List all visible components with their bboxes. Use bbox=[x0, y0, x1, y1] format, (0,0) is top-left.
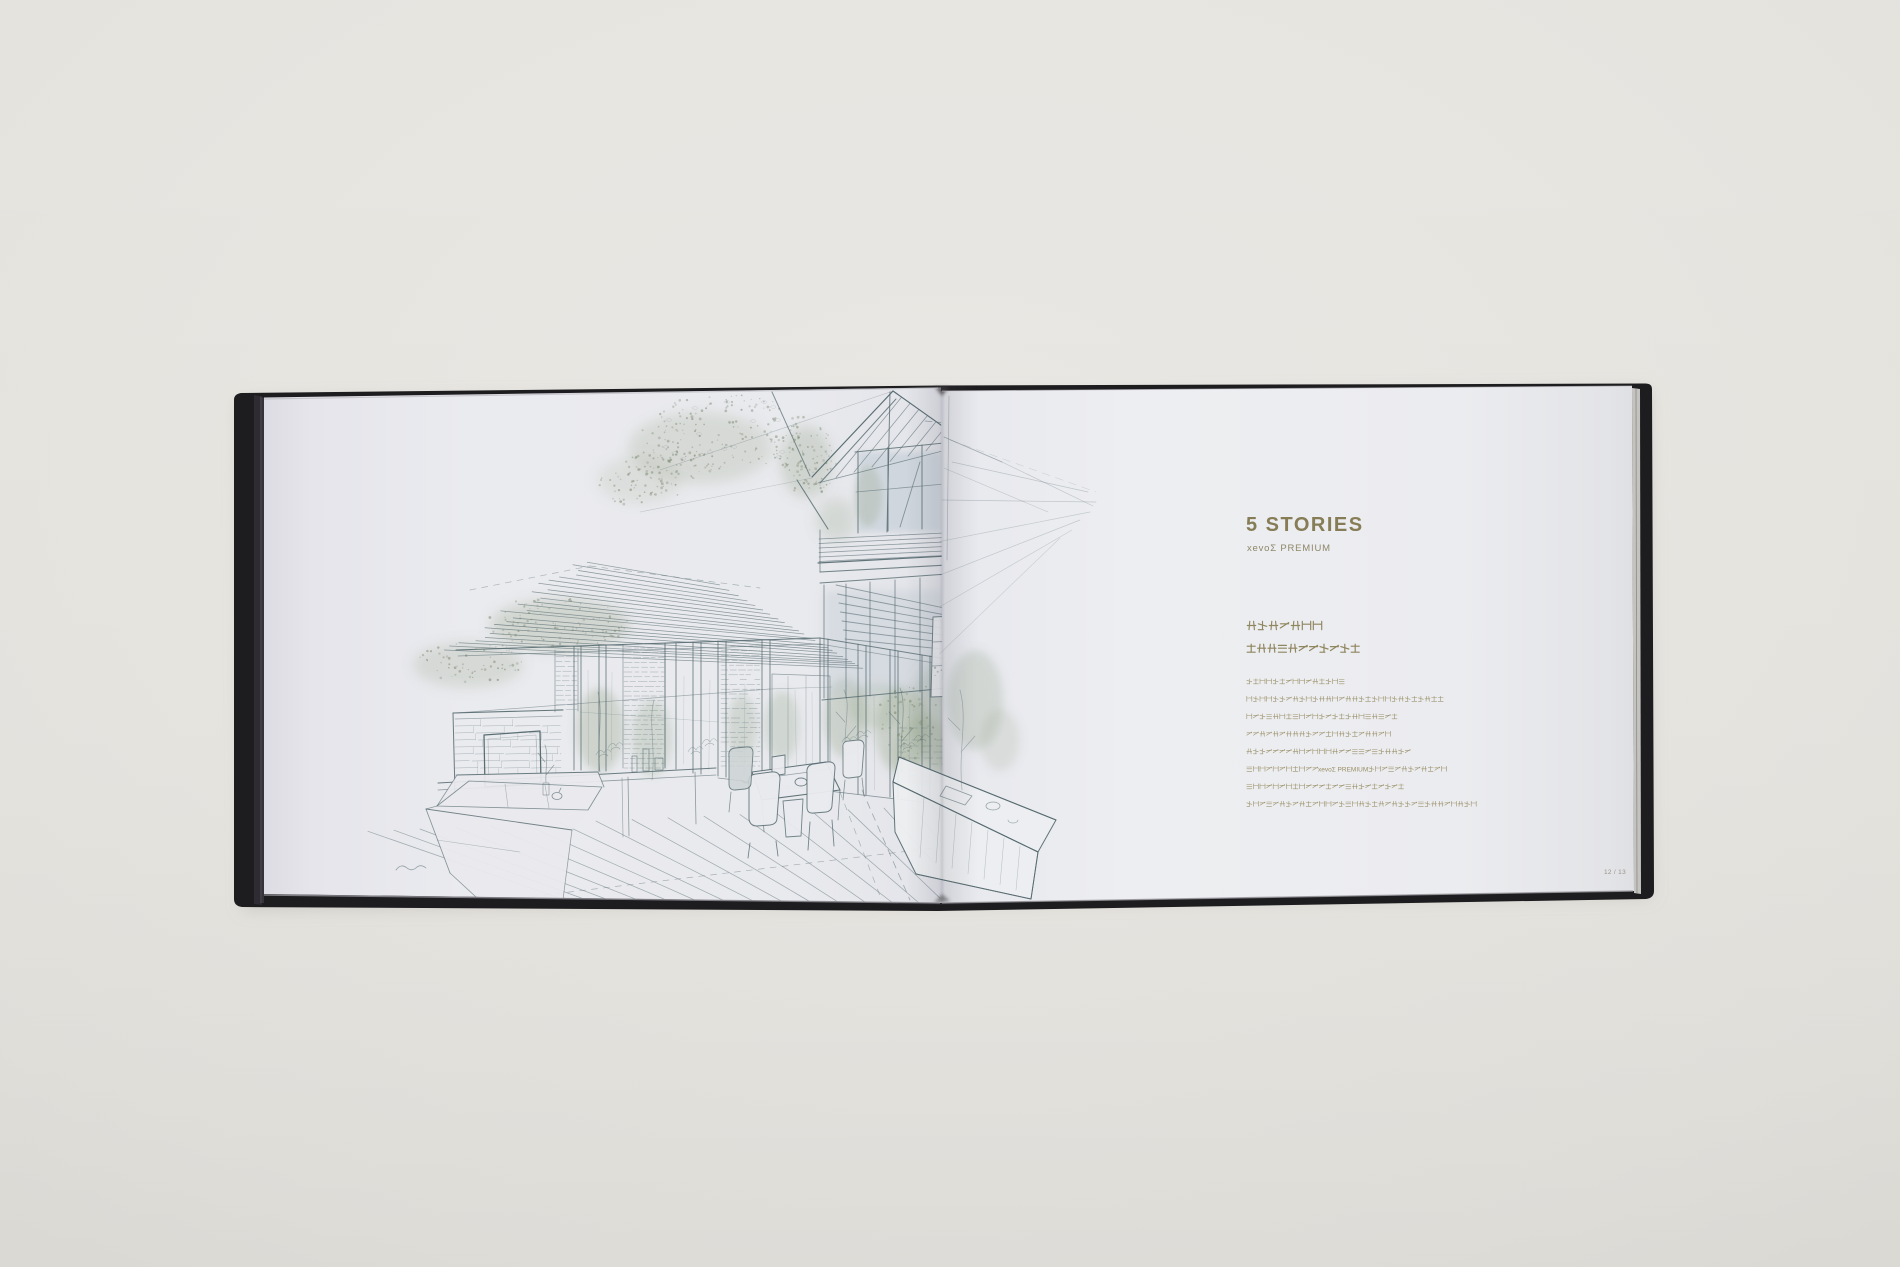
svg-text:xevoΣ PREMIUM: xevoΣ PREMIUM bbox=[1247, 543, 1331, 554]
svg-text:xevoΣ PREMIUM: xevoΣ PREMIUM bbox=[1318, 767, 1368, 774]
svg-text:12 / 13: 12 / 13 bbox=[1604, 869, 1626, 876]
svg-text:5 STORIES: 5 STORIES bbox=[1246, 514, 1364, 536]
